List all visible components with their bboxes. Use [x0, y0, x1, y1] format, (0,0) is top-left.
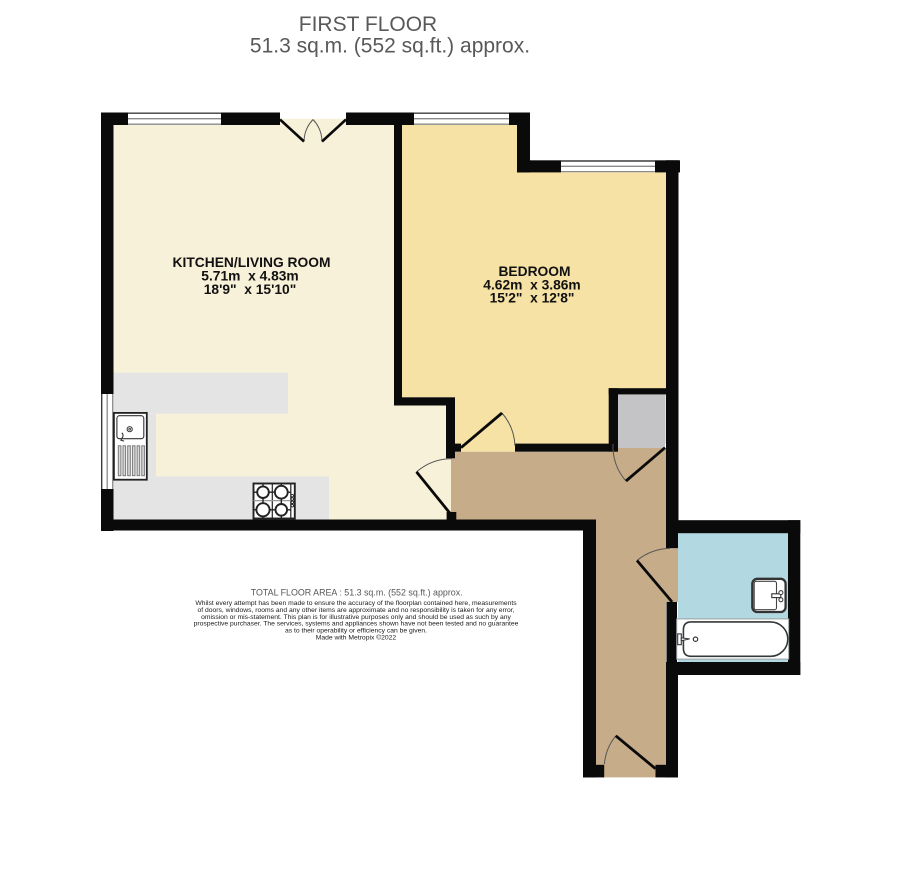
svg-text:TOTAL FLOOR AREA : 51.3 sq.m.: TOTAL FLOOR AREA : 51.3 sq.m. (552 sq.ft…: [251, 587, 463, 597]
svg-text:Made with Metropix ©2022: Made with Metropix ©2022: [316, 634, 397, 642]
svg-text:15'2" x 12'8": 15'2" x 12'8": [490, 290, 575, 305]
svg-text:18'9" x 15'10": 18'9" x 15'10": [204, 282, 297, 297]
svg-text:FIRST FLOOR: FIRST FLOOR: [299, 13, 437, 36]
svg-text:51.3 sq.m. (552 sq.ft.) approx: 51.3 sq.m. (552 sq.ft.) approx.: [250, 35, 530, 58]
